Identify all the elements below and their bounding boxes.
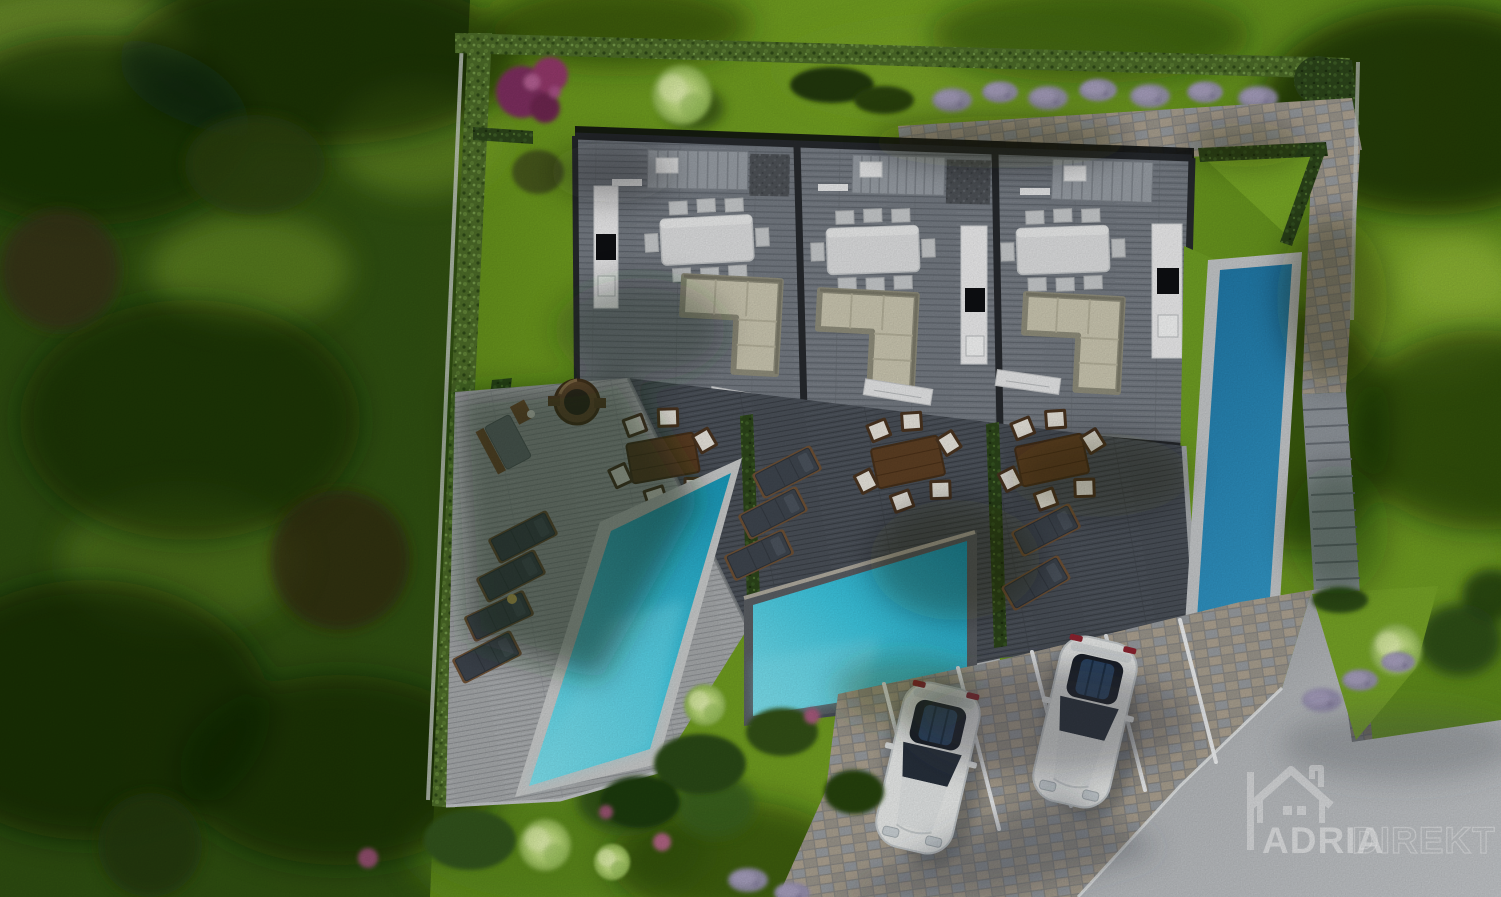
- scene-canvas: ADRIA DIREKT: [0, 0, 1501, 897]
- aerial-render: ADRIA DIREKT: [0, 0, 1501, 897]
- render-grain-overlay: [0, 0, 1501, 897]
